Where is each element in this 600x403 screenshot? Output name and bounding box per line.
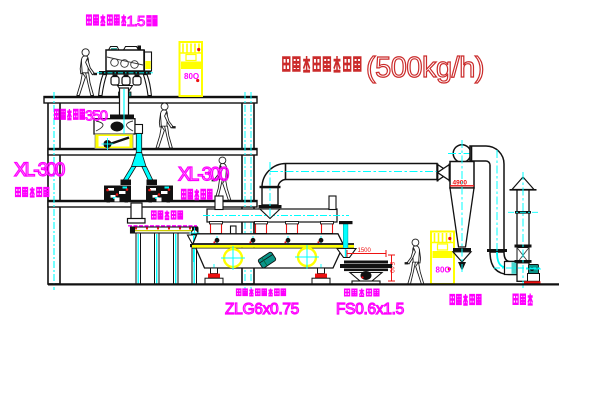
svg-text:(500kg/h): (500kg/h) (366, 52, 484, 84)
svg-text:XL-300: XL-300 (178, 165, 229, 186)
svg-text:1.5: 1.5 (127, 13, 146, 30)
svg-text:80O: 80O (184, 72, 199, 81)
svg-text:1500: 1500 (358, 248, 372, 254)
svg-text:350: 350 (85, 108, 108, 125)
svg-text:80O: 80O (436, 266, 451, 275)
svg-text:XL-300: XL-300 (14, 160, 65, 181)
svg-text:FS0.6x1.5: FS0.6x1.5 (336, 301, 404, 318)
svg-text:ZLG6x0.75: ZLG6x0.75 (225, 301, 299, 318)
